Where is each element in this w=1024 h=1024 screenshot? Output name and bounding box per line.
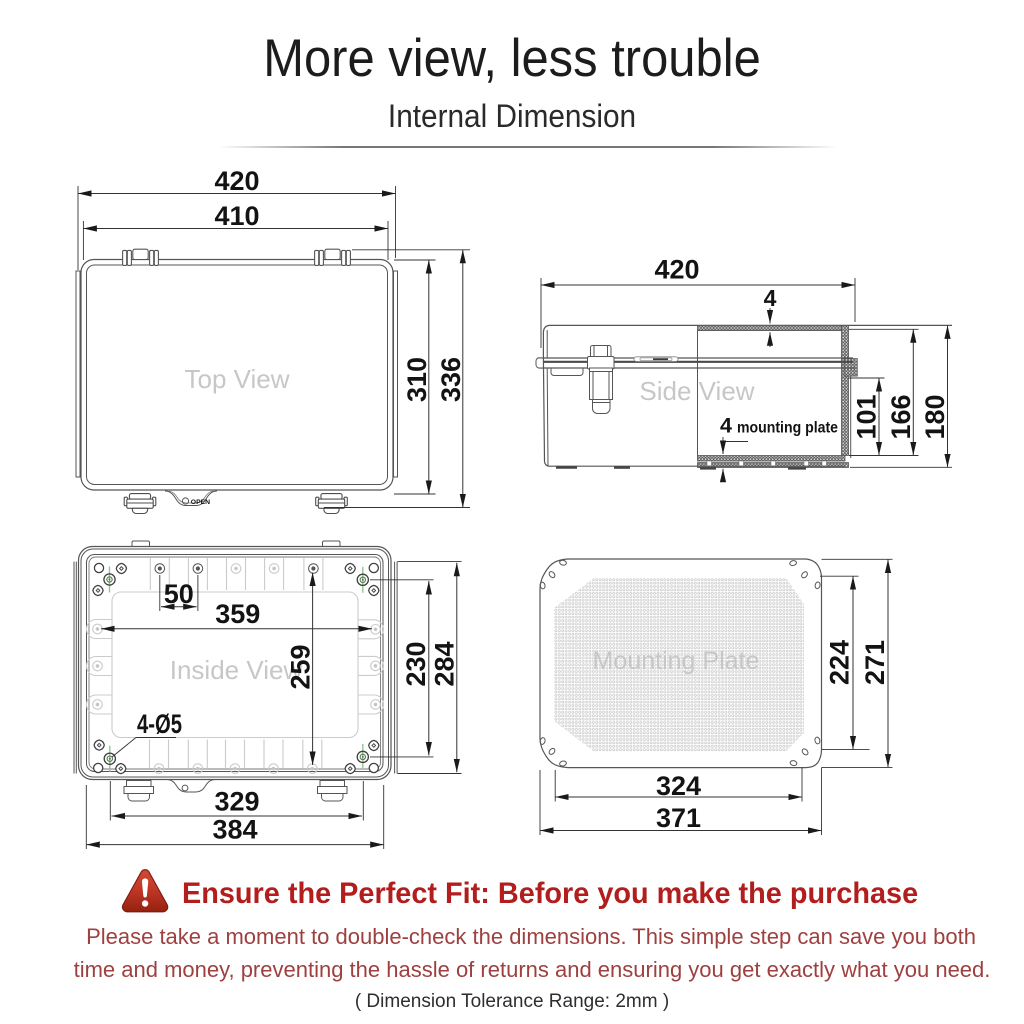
svg-text:310: 310 (402, 357, 432, 402)
svg-text:420: 420 (214, 166, 259, 196)
svg-text:166: 166 (886, 394, 916, 439)
svg-text:4: 4 (764, 285, 777, 311)
svg-text:371: 371 (656, 803, 701, 833)
svg-text:180: 180 (920, 394, 950, 439)
svg-text:Side View: Side View (639, 376, 754, 406)
svg-text:259: 259 (286, 644, 316, 689)
svg-text:336: 336 (436, 357, 466, 402)
svg-text:4: 4 (720, 414, 732, 438)
svg-text:224: 224 (825, 640, 855, 685)
svg-text:mounting plate: mounting plate (737, 420, 838, 437)
svg-text:OPEN: OPEN (191, 499, 210, 506)
svg-text:359: 359 (215, 599, 260, 629)
svg-text:329: 329 (214, 787, 259, 817)
svg-text:Mounting Plate: Mounting Plate (593, 647, 760, 675)
svg-text:284: 284 (429, 641, 459, 686)
svg-text:230: 230 (401, 641, 431, 686)
svg-text:271: 271 (860, 640, 890, 685)
svg-text:50: 50 (164, 579, 194, 609)
svg-text:4-Ø5: 4-Ø5 (137, 709, 182, 739)
svg-text:Top View: Top View (184, 364, 289, 394)
svg-text:410: 410 (214, 201, 259, 231)
svg-text:Inside View: Inside View (170, 655, 303, 685)
svg-text:101: 101 (852, 394, 882, 439)
svg-text:420: 420 (654, 255, 699, 285)
svg-text:384: 384 (212, 815, 257, 845)
